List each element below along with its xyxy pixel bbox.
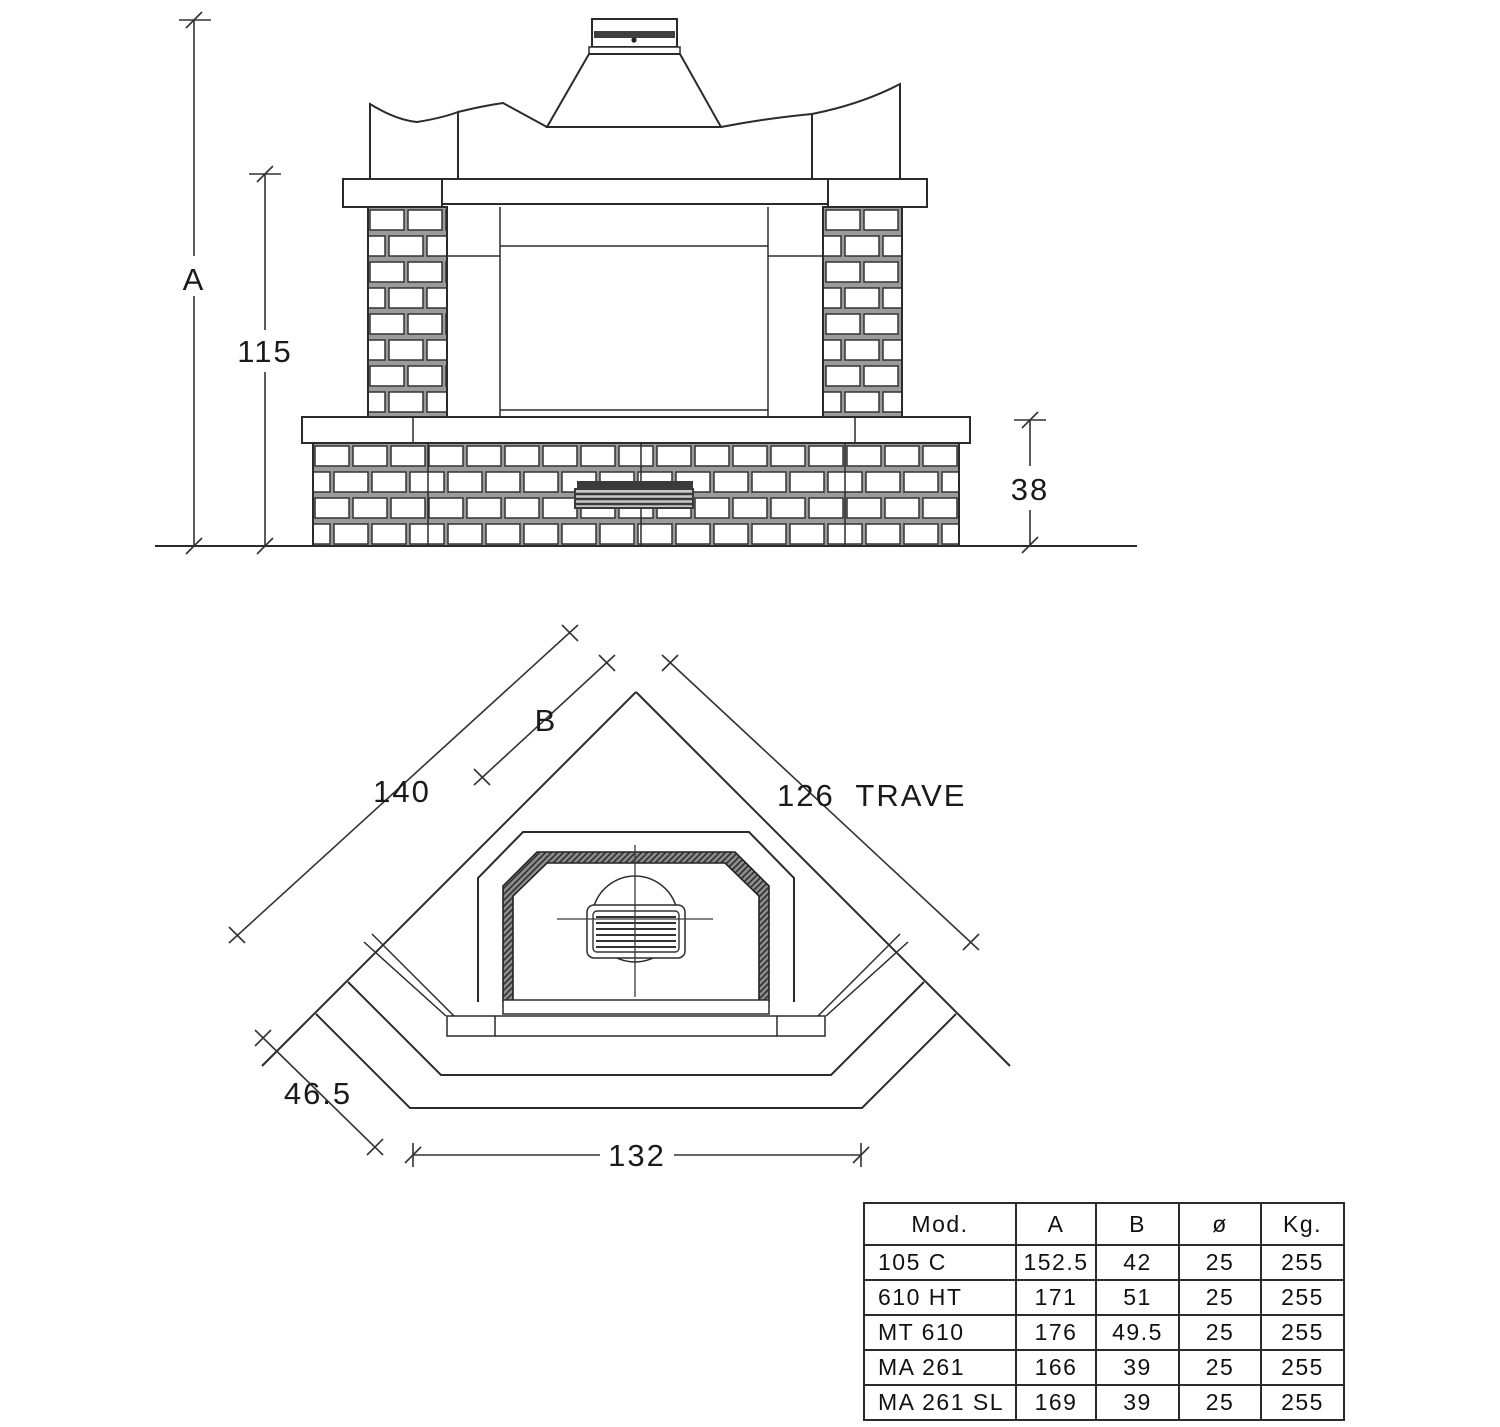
table-row: 610 HT 171 51 25 255 <box>864 1280 1344 1315</box>
dimension-A: A <box>179 12 211 554</box>
table-cell: 39 <box>1096 1385 1179 1420</box>
front-elevation-view: A 115 38 <box>155 12 1137 554</box>
table-cell: 25 <box>1179 1350 1261 1385</box>
left-brick-pillar <box>368 207 447 417</box>
collar-dot <box>631 37 636 42</box>
table-cell: 169 <box>1016 1385 1096 1420</box>
table-cell-model: 105 C <box>864 1245 1016 1280</box>
technical-drawing-page: A 115 38 <box>0 0 1500 1427</box>
dim-label-38: 38 <box>1011 472 1049 507</box>
dim-label-140: 140 <box>373 774 431 809</box>
col-header-b: B <box>1096 1203 1179 1245</box>
dimension-38: 38 <box>1011 412 1049 553</box>
table-cell: 25 <box>1179 1315 1261 1350</box>
col-header-kg: Kg. <box>1261 1203 1344 1245</box>
table-cell-model: MA 261 <box>864 1350 1016 1385</box>
col-header-diameter: ø <box>1179 1203 1261 1245</box>
plan-view: 140 B 126 TRAVE 46.5 132 <box>229 625 1010 1173</box>
col-header-a: A <box>1016 1203 1096 1245</box>
table-cell-model: 610 HT <box>864 1280 1016 1315</box>
right-brick-pillar <box>823 207 902 417</box>
table-cell: 255 <box>1261 1280 1344 1315</box>
table-cell: 166 <box>1016 1350 1096 1385</box>
firebox-sill <box>503 1000 769 1014</box>
table-row: MA 261 166 39 25 255 <box>864 1350 1344 1385</box>
table-cell: 152.5 <box>1016 1245 1096 1280</box>
flue-collar <box>589 19 680 54</box>
spec-table: Mod. A B ø Kg. 105 C 152.5 42 25 255 610… <box>863 1202 1345 1421</box>
table-cell-model: MT 610 <box>864 1315 1016 1350</box>
firebox-surround <box>447 207 823 417</box>
table-cell: 255 <box>1261 1245 1344 1280</box>
table-row: MA 261 SL 169 39 25 255 <box>864 1385 1344 1420</box>
bench-front-band <box>447 1016 825 1036</box>
table-cell: 255 <box>1261 1350 1344 1385</box>
dimension-132: 132 <box>405 1138 869 1173</box>
table-cell: 49.5 <box>1096 1315 1179 1350</box>
table-cell: 176 <box>1016 1315 1096 1350</box>
table-cell: 25 <box>1179 1245 1261 1280</box>
dimension-B: B <box>474 655 615 785</box>
table-cell: 25 <box>1179 1280 1261 1315</box>
dimension-46-5: 46.5 <box>255 1030 383 1155</box>
dim-label-132: 132 <box>608 1138 666 1173</box>
table-cell: 51 <box>1096 1280 1179 1315</box>
table-cell: 255 <box>1261 1385 1344 1420</box>
dimension-115: 115 <box>237 166 292 554</box>
dim-label-B: B <box>535 703 558 738</box>
mantel-shelf <box>343 179 927 207</box>
hood-trapezoid <box>547 54 721 127</box>
dim-label-46-5: 46.5 <box>284 1076 352 1111</box>
table-cell: 171 <box>1016 1280 1096 1315</box>
hearth-slab <box>302 417 970 443</box>
bench-left-block <box>447 1016 495 1036</box>
air-grate <box>575 481 693 508</box>
dim-label-115: 115 <box>237 334 292 369</box>
table-cell: 25 <box>1179 1385 1261 1420</box>
table-cell: 39 <box>1096 1350 1179 1385</box>
dim-label-A: A <box>183 262 206 297</box>
fan-grate <box>587 905 685 958</box>
bench-right-block <box>777 1016 825 1036</box>
table-header-row: Mod. A B ø Kg. <box>864 1203 1344 1245</box>
table-cell: 255 <box>1261 1315 1344 1350</box>
table-row: MT 610 176 49.5 25 255 <box>864 1315 1344 1350</box>
col-header-mod: Mod. <box>864 1203 1016 1245</box>
collar-band <box>594 31 675 38</box>
bench-outer-outline <box>316 1014 956 1108</box>
table-cell: 42 <box>1096 1245 1179 1280</box>
table-row: 105 C 152.5 42 25 255 <box>864 1245 1344 1280</box>
dim-label-126-trave: 126 TRAVE <box>777 778 966 813</box>
table-cell-model: MA 261 SL <box>864 1385 1016 1420</box>
